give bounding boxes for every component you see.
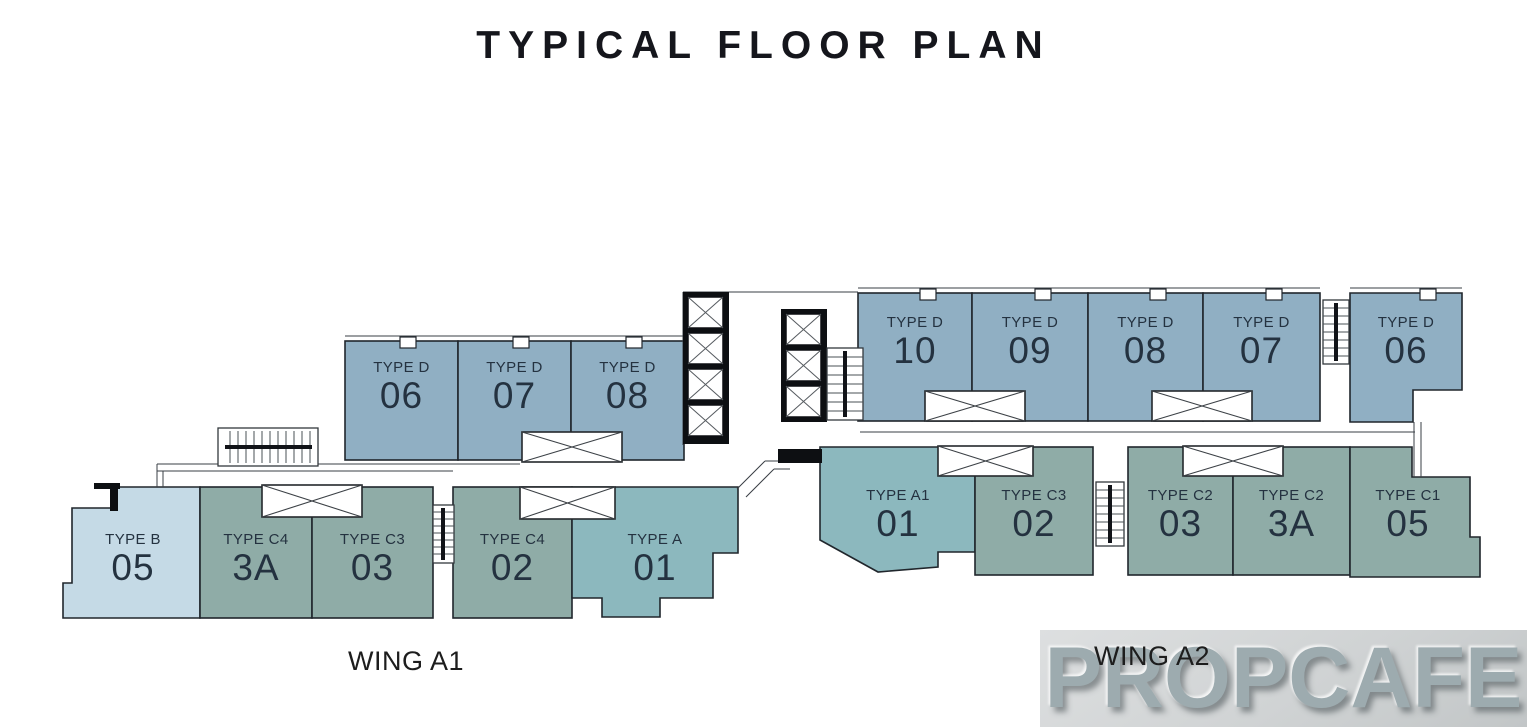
floor-plan-page: TYPICAL FLOOR PLAN xyxy=(0,0,1527,727)
balcony-notch xyxy=(1266,289,1282,300)
unit-shape-a1-b05 xyxy=(63,487,200,618)
balcony-notch xyxy=(1150,289,1166,300)
void-box xyxy=(520,487,615,519)
void-box xyxy=(938,446,1033,476)
staircase-a1-units xyxy=(433,505,454,563)
void-box xyxy=(925,391,1025,421)
corridor-link-line xyxy=(737,461,790,497)
staircase-a2-top xyxy=(1323,300,1349,364)
wing-a1-label: WING A1 xyxy=(348,646,464,677)
unit-shape-a2-d06 xyxy=(1350,293,1462,422)
wall-segment xyxy=(778,449,822,463)
staircase-a2-bottom xyxy=(1096,482,1124,546)
void-box xyxy=(262,485,362,517)
balcony-notch xyxy=(920,289,936,300)
balcony-notch xyxy=(400,337,416,348)
lift-shafts-right xyxy=(786,314,821,417)
void-box xyxy=(522,432,622,462)
page-title: TYPICAL FLOOR PLAN xyxy=(0,24,1527,68)
balcony-notch xyxy=(1420,289,1436,300)
balcony-notch xyxy=(626,337,642,348)
unit-shape-a1-d06 xyxy=(345,341,458,460)
balcony-notch xyxy=(513,337,529,348)
unit-shape-a2-c1-05 xyxy=(1350,447,1480,577)
floor-plan-drawing xyxy=(0,0,1527,727)
void-box xyxy=(1152,391,1252,421)
staircase-a1-corridor xyxy=(218,428,318,466)
balcony-notch xyxy=(1035,289,1051,300)
wall-segment xyxy=(110,483,118,511)
staircase-core xyxy=(827,348,863,420)
wing-a2-label: WING A2 xyxy=(1094,641,1210,672)
void-box xyxy=(1183,446,1283,476)
